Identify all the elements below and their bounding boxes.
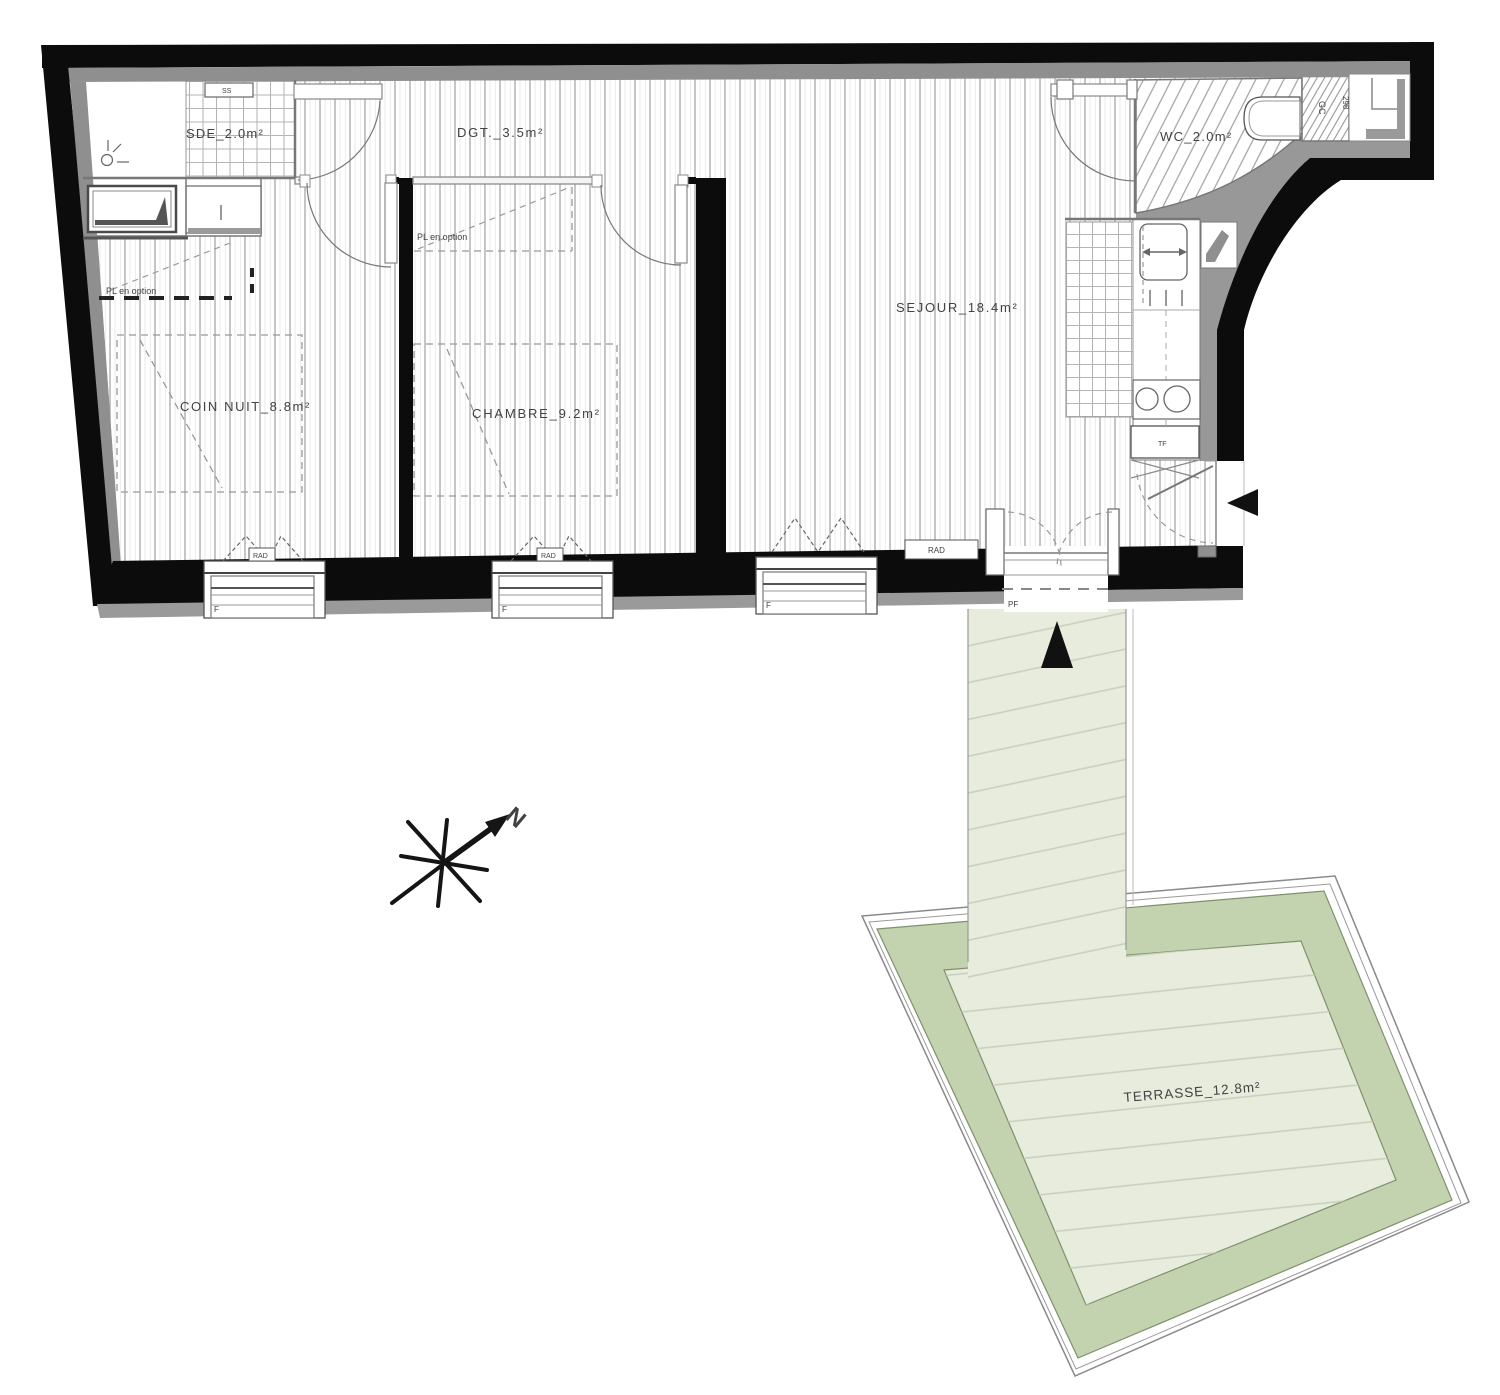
svg-text:PF: PF: [1008, 600, 1018, 609]
svg-text:RAD: RAD: [253, 553, 268, 560]
svg-text:GC: GC: [1317, 101, 1327, 115]
svg-text:PL en option: PL en option: [106, 286, 156, 296]
svg-text:RAD: RAD: [928, 546, 945, 555]
svg-text:F: F: [766, 601, 771, 610]
svg-text:PL en option: PL en option: [417, 232, 467, 242]
svg-text:CHAMBRE_9.2m²: CHAMBRE_9.2m²: [472, 406, 601, 421]
svg-text:F: F: [502, 605, 507, 614]
svg-text:RAD: RAD: [541, 553, 556, 560]
svg-text:TF: TF: [1158, 441, 1167, 448]
svg-text:F: F: [214, 605, 219, 614]
svg-text:WC_2.0m²: WC_2.0m²: [1160, 129, 1233, 144]
svg-text:SDE_2.0m²: SDE_2.0m²: [186, 126, 264, 141]
svg-text:SEJOUR_18.4m²: SEJOUR_18.4m²: [896, 300, 1019, 315]
svg-text:SS: SS: [222, 88, 232, 95]
svg-text:COIN NUIT_8.8m²: COIN NUIT_8.8m²: [180, 399, 311, 414]
svg-text:DGT._3.5m²: DGT._3.5m²: [457, 125, 544, 140]
svg-text:298: 298: [1341, 96, 1350, 110]
